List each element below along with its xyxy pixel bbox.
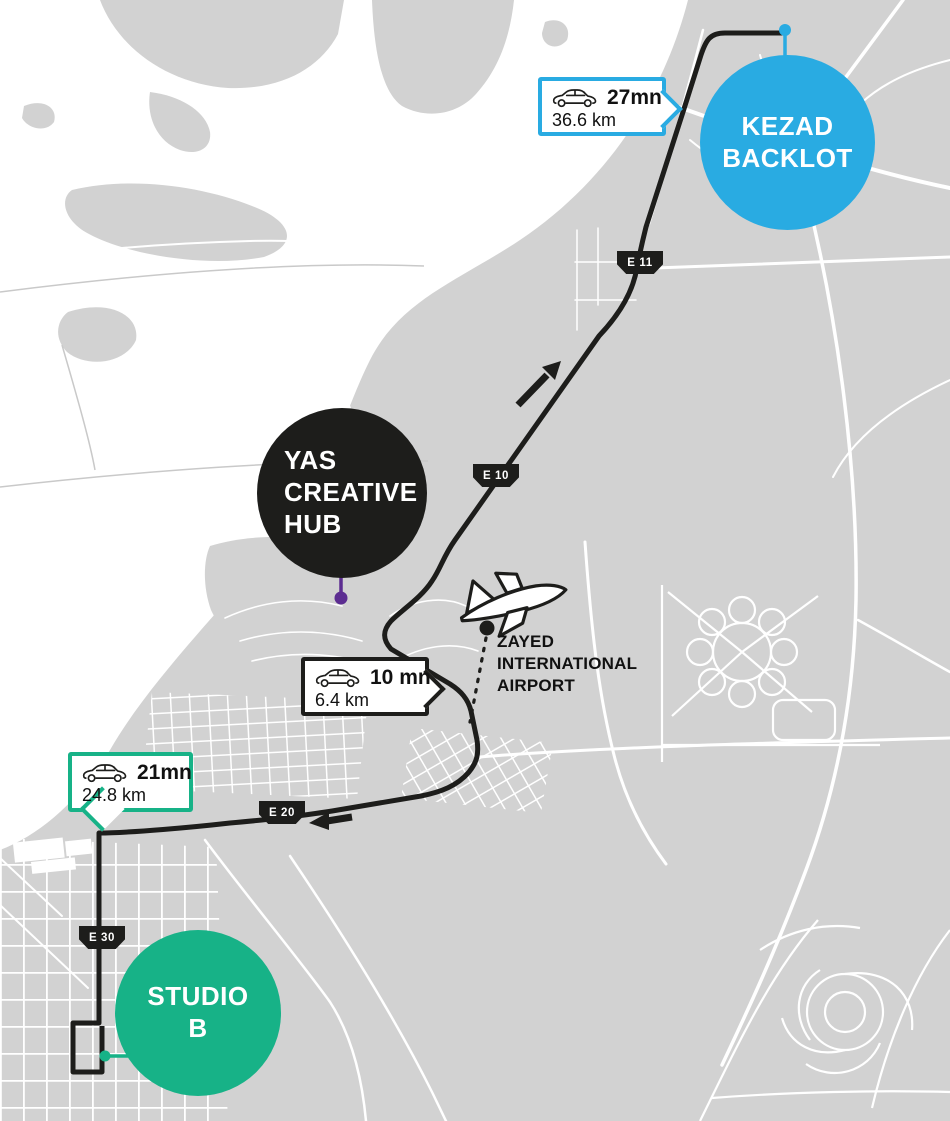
marker-label-line: BACKLOT [722,143,853,175]
road-label-text: E 20 [269,807,295,819]
marker-studio-b: STUDIO B [115,930,281,1096]
marker-yas-creative-hub: YAS CREATIVE HUB [257,408,427,578]
road-label-e20: E 20 [259,801,305,824]
route-map-infographic: KEZAD BACKLOT YAS CREATIVE HUB STUDIO B … [0,0,950,1121]
road-label-e11: E 11 [617,251,663,274]
road-label-e30: E 30 [79,926,125,949]
airport-label: ZAYED INTERNATIONAL AIRPORT [497,631,637,697]
car-icon [315,667,361,689]
drive-time-badge-kezad: 27mn 36.6 km [538,77,666,136]
marker-label-line: CREATIVE [284,477,418,509]
distance-label: 36.6 km [552,110,654,131]
airport-label-line: AIRPORT [497,675,637,697]
airport-dot [480,621,495,636]
duration-label: 27mn [607,86,662,110]
car-icon [82,762,128,784]
marker-label-line: KEZAD [741,111,833,143]
drive-time-badge-airport: 10 mn 6.4 km [301,657,429,716]
road-label-text: E 10 [483,470,509,482]
car-icon [552,87,598,109]
airport-label-line: INTERNATIONAL [497,653,637,675]
marker-label-line: B [188,1013,207,1045]
airport-label-line: ZAYED [497,631,637,653]
drive-time-badge-studio-b: 21mn 24.8 km [68,752,193,812]
distance-label: 24.8 km [82,785,181,806]
road-label-text: E 30 [89,932,115,944]
road-label-text: E 11 [627,257,652,269]
distance-label: 6.4 km [315,690,417,711]
marker-label-line: STUDIO [147,981,248,1013]
duration-label: 10 mn [370,666,431,690]
road-label-e10: E 10 [473,464,519,487]
marker-kezad-backlot: KEZAD BACKLOT [700,55,875,230]
marker-label-line: YAS [284,445,337,477]
marker-label-line: HUB [284,509,342,541]
duration-label: 21mn [137,761,192,785]
